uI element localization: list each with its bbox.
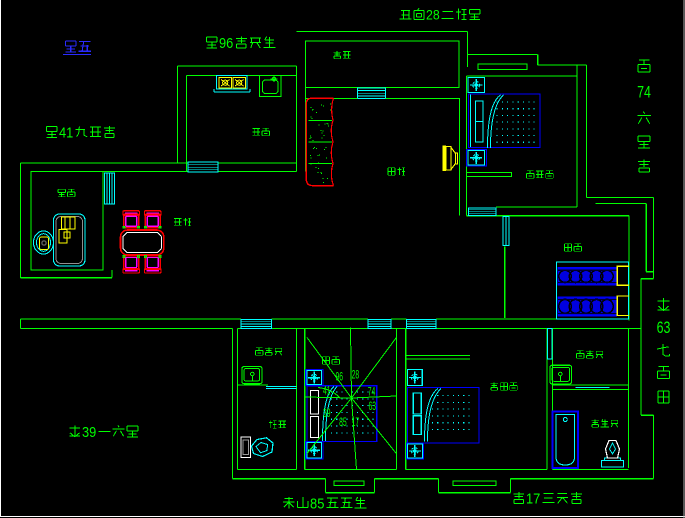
svg-text:17: 17	[352, 415, 360, 429]
svg-text:41: 41	[323, 384, 331, 398]
svg-text:85: 85	[339, 415, 347, 429]
svg-text:96: 96	[219, 36, 233, 52]
svg-text:39: 39	[82, 425, 96, 441]
svg-text:63: 63	[657, 318, 671, 337]
svg-text:96: 96	[336, 370, 344, 384]
svg-text:74: 74	[637, 83, 651, 102]
svg-text:85: 85	[310, 496, 324, 512]
svg-text:28: 28	[352, 368, 360, 382]
svg-text:74: 74	[368, 385, 376, 399]
svg-text:17: 17	[526, 491, 540, 507]
svg-text:41: 41	[59, 125, 73, 141]
svg-text:28: 28	[426, 8, 440, 24]
svg-text:63: 63	[369, 399, 377, 413]
svg-text:39: 39	[323, 406, 331, 420]
